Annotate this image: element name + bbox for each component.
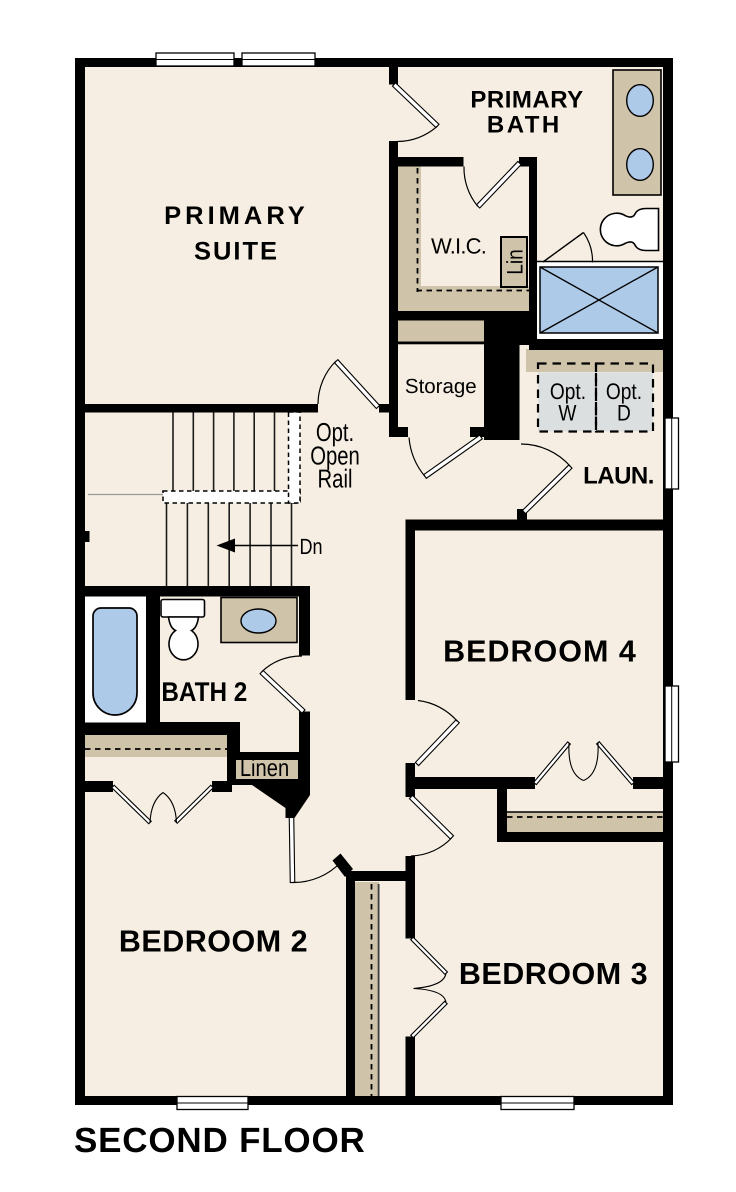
svg-text:Dn: Dn (300, 534, 323, 559)
svg-text:BEDROOM 2: BEDROOM 2 (119, 925, 308, 959)
svg-text:SECOND FLOOR: SECOND FLOOR (74, 1121, 366, 1160)
svg-text:PRIMARY: PRIMARY (470, 87, 583, 114)
svg-text:BEDROOM 3: BEDROOM 3 (459, 957, 648, 991)
svg-text:W.I.C.: W.I.C. (431, 233, 486, 258)
svg-text:BATH: BATH (487, 112, 562, 139)
svg-text:BATH 2: BATH 2 (161, 677, 247, 707)
svg-text:Lin: Lin (503, 249, 528, 275)
svg-text:Linen: Linen (240, 755, 289, 782)
svg-text:D: D (617, 400, 631, 425)
svg-text:BEDROOM 4: BEDROOM 4 (443, 635, 637, 669)
svg-text:W: W (558, 400, 577, 425)
svg-text:Rail: Rail (318, 464, 353, 494)
svg-text:Storage: Storage (405, 375, 477, 398)
svg-text:PRIMARY: PRIMARY (164, 202, 309, 230)
svg-text:LAUN.: LAUN. (583, 463, 654, 490)
svg-text:SUITE: SUITE (194, 238, 279, 266)
